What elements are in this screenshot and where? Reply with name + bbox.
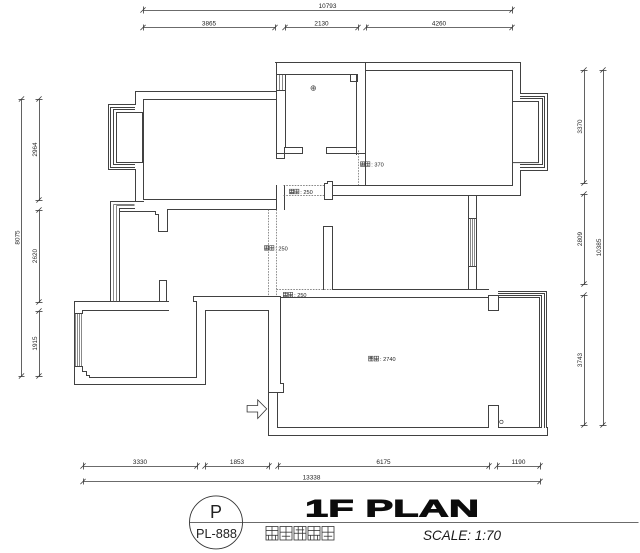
svg-text:1853: 1853 [230,459,245,466]
svg-text:: 250: : 250 [294,293,306,299]
svg-text:SCALE: 1:70: SCALE: 1:70 [423,527,501,543]
svg-text:10793: 10793 [319,3,337,10]
svg-text:3865: 3865 [202,21,217,28]
svg-text:8075: 8075 [14,230,21,245]
svg-text:2964: 2964 [32,142,39,157]
svg-text:13338: 13338 [303,475,321,482]
svg-text:10385: 10385 [596,238,603,256]
svg-text:4260: 4260 [432,21,447,28]
svg-text:3743: 3743 [577,352,584,367]
svg-text:PL-888: PL-888 [196,526,237,541]
svg-text:6175: 6175 [376,459,391,466]
svg-text:: 370: : 370 [371,163,383,169]
svg-text:P: P [210,502,222,522]
svg-text:3330: 3330 [133,459,148,466]
svg-text:: 2740: : 2740 [380,357,396,363]
svg-text:2620: 2620 [32,248,39,263]
svg-text:1190: 1190 [512,459,526,466]
svg-text:2809: 2809 [577,231,584,246]
svg-text:: 250: : 250 [300,190,312,196]
svg-text:2130: 2130 [314,21,329,28]
svg-text:3370: 3370 [577,119,584,134]
svg-text:1915: 1915 [32,336,39,351]
svg-text:: 250: : 250 [275,246,287,252]
svg-text:1F PLAN: 1F PLAN [305,496,479,523]
